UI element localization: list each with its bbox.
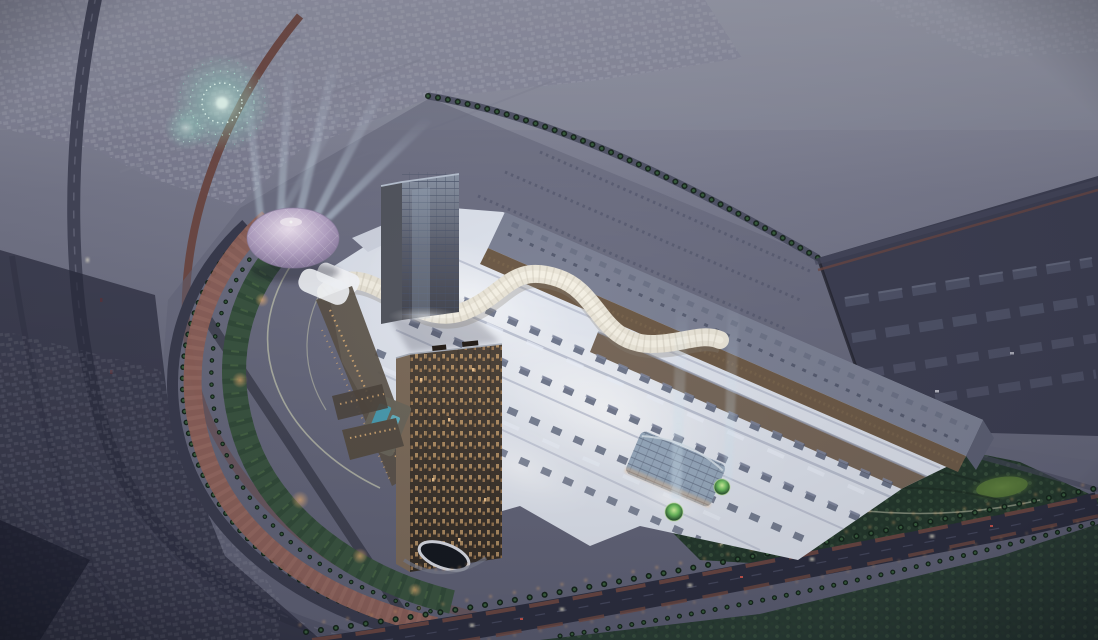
architectural-render	[0, 0, 1098, 640]
render-canvas	[0, 0, 1098, 640]
vignette	[0, 0, 1098, 640]
